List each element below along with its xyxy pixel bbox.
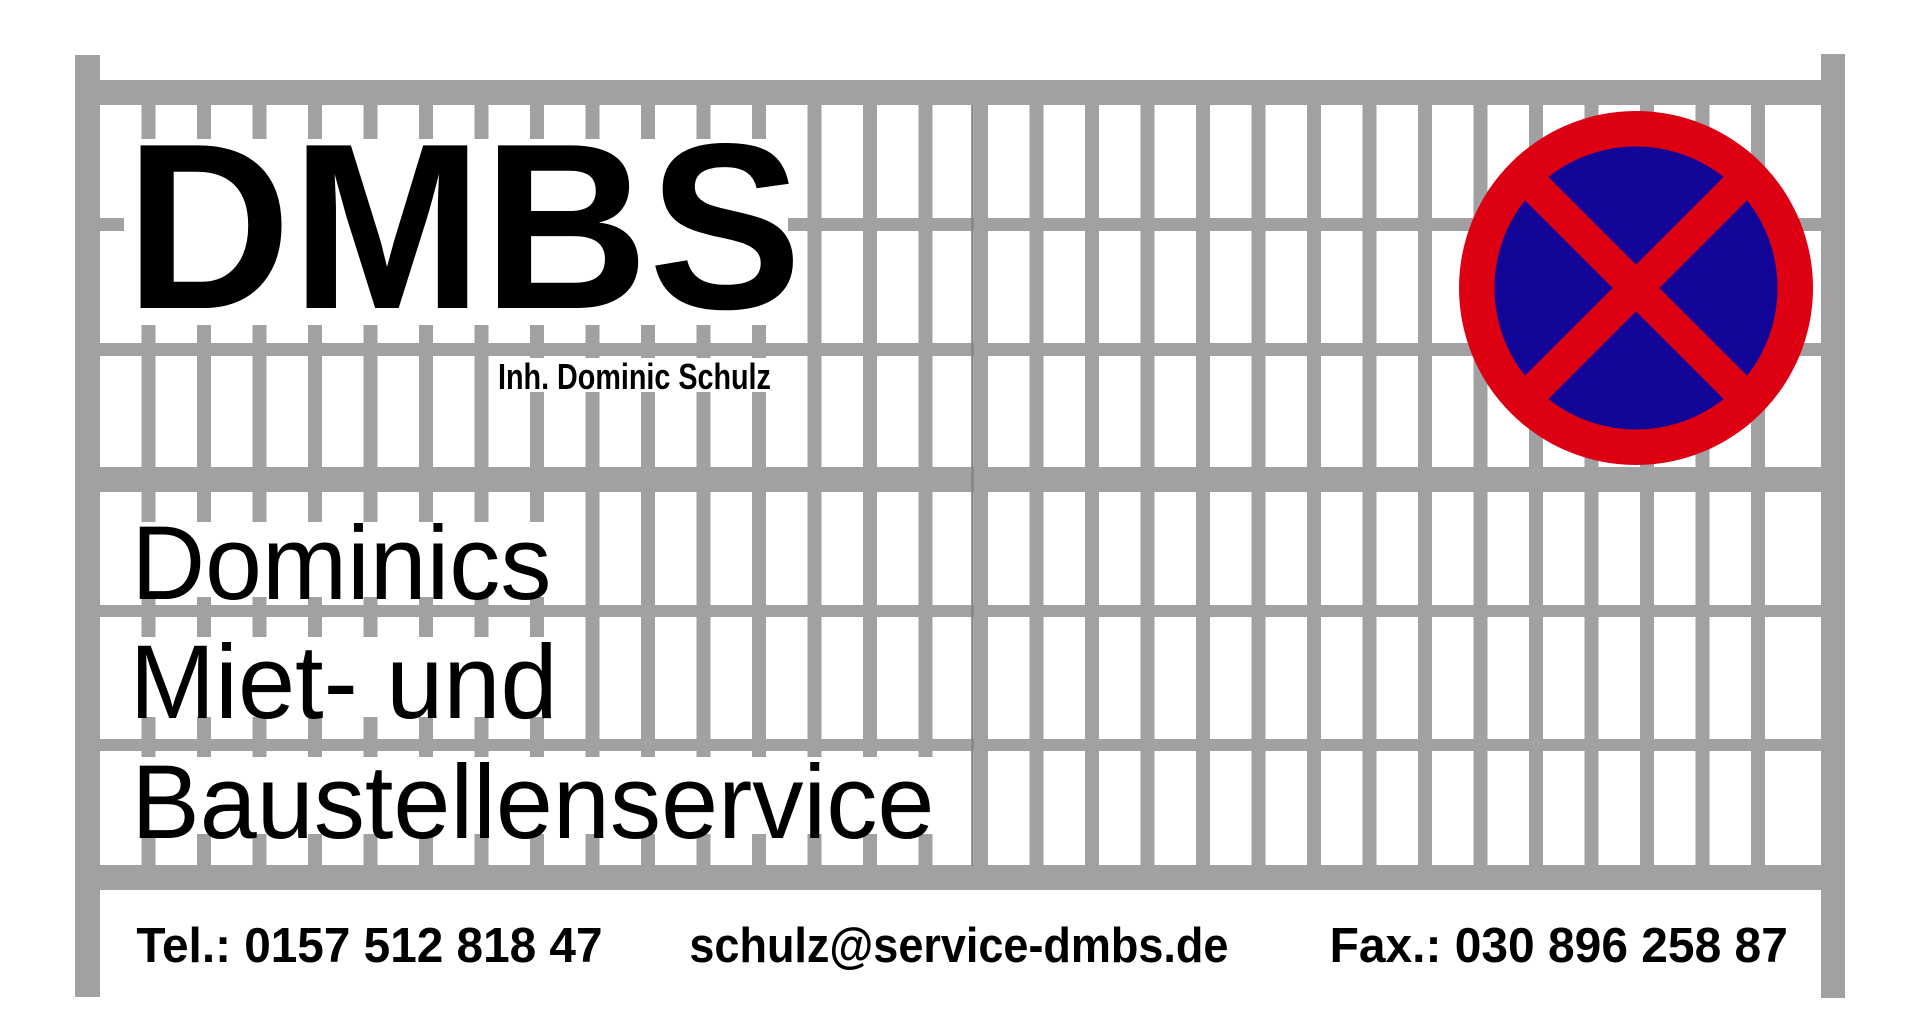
svg-text:Baustellenservice: Baustellenservice (131, 743, 934, 860)
svg-text:Tel.: 0157 512 818 47: Tel.: 0157 512 818 47 (136, 918, 602, 973)
svg-text:schulz@service-dmbs.de: schulz@service-dmbs.de (689, 918, 1228, 973)
svg-text:DMBS: DMBS (125, 95, 802, 359)
svg-text:Fax.: 030 896 258 87: Fax.: 030 896 258 87 (1330, 918, 1788, 973)
svg-text:Dominics: Dominics (131, 504, 551, 621)
svg-text:Miet- und: Miet- und (130, 623, 558, 740)
svg-text:Inh. Dominic Schulz: Inh. Dominic Schulz (498, 356, 771, 397)
